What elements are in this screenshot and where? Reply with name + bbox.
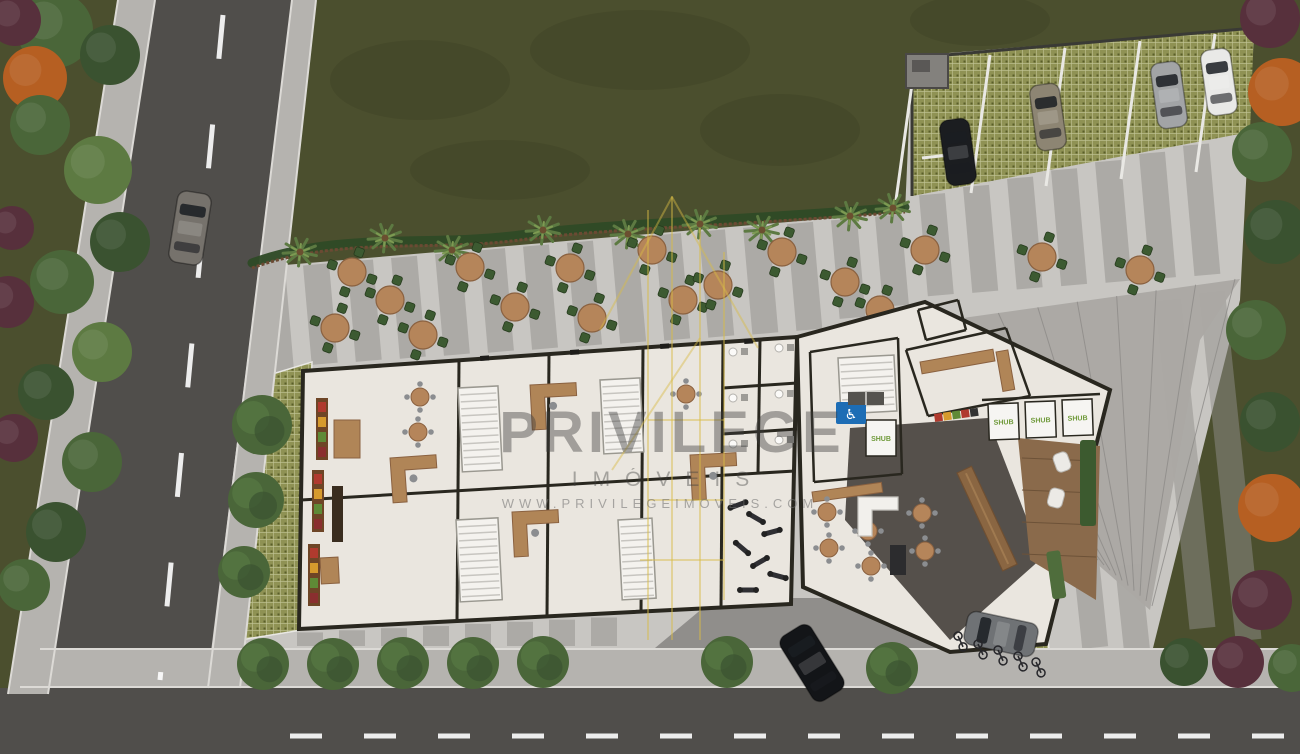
- restroom-sink: [741, 348, 748, 355]
- shub-mat: SHUB: [988, 403, 1019, 440]
- terrace-table: [911, 236, 939, 264]
- shub-label: SHUB: [871, 436, 891, 443]
- storefront-door: [660, 343, 669, 349]
- shub-mat: SHUB: [866, 420, 896, 456]
- roof-highlight: [947, 145, 969, 161]
- tree_dark-foliage-hi: [32, 510, 62, 540]
- indoor-table: [862, 557, 880, 575]
- market-goods: [310, 548, 318, 558]
- watermark-subtitle-text: IMÓVEIS: [572, 468, 765, 491]
- palmc-foliage-hi: [78, 330, 108, 360]
- storefront-door: [570, 349, 579, 355]
- terrace-table: [556, 254, 584, 282]
- market-goods: [310, 563, 318, 573]
- tree-shade: [327, 656, 353, 682]
- market-goods: [318, 402, 326, 412]
- indoor-chair: [402, 429, 408, 435]
- palm-trunk: [890, 205, 897, 212]
- terrace-table: [338, 258, 366, 286]
- tree-foliage-hi: [1238, 130, 1268, 160]
- watermark-url-text: WWW.PRIVILEGEIMOVEIS.COM: [502, 496, 818, 511]
- terrace-table: [456, 253, 484, 281]
- market-goods: [310, 578, 318, 588]
- produce-crate: [970, 408, 979, 417]
- site-plan-render: SHUBSHUBSHUBSHUB♿ PRIVILEGE IMÓVEIS WWW.…: [0, 0, 1300, 754]
- terrace-table: [321, 314, 349, 342]
- tree-shade: [257, 656, 283, 682]
- aerial-render: SHUBSHUBSHUBSHUB♿ PRIVILEGE IMÓVEIS WWW.…: [0, 0, 1300, 754]
- indoor-chair: [826, 558, 832, 564]
- tree-foliage-hi: [68, 440, 98, 470]
- market-goods: [314, 489, 322, 499]
- indoor-chair: [868, 576, 874, 582]
- indoor-chair: [824, 496, 830, 502]
- indoor-table: [409, 423, 427, 441]
- kiosk: [890, 545, 906, 575]
- tree_dark-foliage-hi: [1246, 400, 1276, 430]
- indoor-chair: [415, 442, 421, 448]
- indoor-chair: [878, 528, 884, 534]
- indoor-chair: [868, 550, 874, 556]
- palm-trunk: [540, 227, 547, 234]
- market-goods: [310, 593, 318, 603]
- palm-trunk: [449, 247, 456, 254]
- accessible-icon: ♿: [845, 407, 858, 423]
- indoor-table: [818, 503, 836, 521]
- tree-foliage-hi: [16, 103, 46, 133]
- staircase: [456, 518, 502, 602]
- tree-shade: [397, 655, 423, 681]
- paving-stripe: [591, 618, 617, 646]
- gym-weight: [753, 587, 759, 593]
- indoor-chair: [683, 378, 689, 384]
- palm-trunk: [382, 235, 389, 242]
- terrace-table: [1028, 243, 1056, 271]
- market-goods: [318, 417, 326, 427]
- market-goods: [318, 447, 326, 457]
- roof-highlight: [1158, 88, 1180, 104]
- tree-shade: [886, 660, 912, 686]
- palm-trunk: [759, 227, 766, 234]
- roof-highlight: [1037, 110, 1059, 126]
- indoor-chair: [919, 523, 925, 529]
- palm-trunk: [297, 249, 304, 256]
- utility-structure-roof: [912, 60, 930, 72]
- indoor-chair: [428, 429, 434, 435]
- indoor-table: [411, 388, 429, 406]
- indoor-chair: [404, 394, 410, 400]
- tree-foliage-hi: [1232, 308, 1262, 338]
- shub-label: SHUB: [1031, 417, 1051, 425]
- orange-foliage-hi: [1255, 67, 1289, 101]
- green-wall: [1080, 440, 1096, 526]
- indoor-chair: [417, 381, 423, 387]
- wood-counter: [320, 557, 339, 584]
- tree-shade: [255, 416, 285, 446]
- tree-foliage-hi: [36, 258, 68, 290]
- indoor-chair: [813, 545, 819, 551]
- tree-shade: [721, 654, 747, 680]
- indoor-chair: [839, 545, 845, 551]
- indoor-chair: [909, 548, 915, 554]
- gym-equipment: [737, 587, 759, 593]
- indoor-table: [916, 542, 934, 560]
- staircase: [458, 386, 502, 472]
- restroom-fixture: [729, 348, 737, 356]
- produce-crate: [952, 410, 961, 419]
- indoor-chair: [417, 407, 423, 413]
- indoor-chair: [824, 522, 830, 528]
- orange-foliage-hi: [9, 54, 41, 86]
- indoor-chair: [919, 497, 925, 503]
- restroom-sink: [787, 390, 794, 397]
- wood-counter: [334, 420, 360, 458]
- indoor-chair: [826, 532, 832, 538]
- indoor-chair: [932, 510, 938, 516]
- produce-crate: [961, 409, 970, 418]
- palm-trunk: [697, 221, 704, 228]
- restroom-fixture: [775, 390, 783, 398]
- indoor-chair: [430, 394, 436, 400]
- tree_dark-foliage-hi: [86, 33, 116, 63]
- burgundy-foliage-hi: [1238, 578, 1268, 608]
- indoor-chair: [881, 563, 887, 569]
- roof-highlight: [1208, 75, 1230, 91]
- indoor-chair: [906, 510, 912, 516]
- shub-label: SHUB: [994, 419, 1014, 427]
- grass-patch: [410, 140, 590, 200]
- watermark-brand-text: PRIVILEGE: [499, 400, 844, 465]
- indoor-chair: [852, 528, 858, 534]
- indoor-chair: [922, 535, 928, 541]
- tree-shade: [537, 654, 563, 680]
- palmc-foliage-hi: [71, 145, 105, 179]
- produce-crate: [934, 413, 943, 422]
- indoor-table: [820, 539, 838, 557]
- indoor-chair: [837, 509, 843, 515]
- terrace-table: [376, 286, 404, 314]
- shub-mat: SHUB: [1062, 399, 1093, 436]
- burgundy-foliage-hi: [1217, 643, 1243, 669]
- shub-mat: SHUB: [1025, 401, 1056, 438]
- tree_dark-foliage-hi: [96, 220, 126, 250]
- terrace-table: [768, 238, 796, 266]
- terrace-table: [669, 286, 697, 314]
- shub-label: SHUB: [1068, 415, 1088, 423]
- gym-weight: [737, 587, 743, 593]
- market-goods: [318, 432, 326, 442]
- indoor-chair: [415, 416, 421, 422]
- storefront-door: [480, 355, 489, 361]
- indoor-table: [913, 504, 931, 522]
- produce-crate: [943, 412, 952, 421]
- tree-shade: [249, 492, 277, 520]
- palm-trunk: [625, 231, 632, 238]
- grass-patch: [330, 40, 510, 120]
- market-gondola: [332, 486, 343, 542]
- tree-foliage-hi: [3, 566, 29, 592]
- tree_dark-foliage-hi: [1165, 644, 1189, 668]
- indoor-chair: [922, 561, 928, 567]
- tree_dark-foliage-hi: [1250, 208, 1282, 240]
- indoor-chair: [935, 548, 941, 554]
- grass-patch: [530, 10, 750, 90]
- restroom-sink: [787, 344, 794, 351]
- terrace-table: [831, 268, 859, 296]
- paving-stripe: [423, 626, 449, 646]
- tree-shade: [467, 655, 493, 681]
- grass-patch: [700, 94, 860, 166]
- restroom-fixture: [775, 344, 783, 352]
- orange-foliage-hi: [1245, 483, 1279, 517]
- tree-shade: [238, 564, 264, 590]
- tree-foliage-hi: [1273, 650, 1297, 674]
- terrace-table: [501, 293, 529, 321]
- terrace-table: [1126, 256, 1154, 284]
- terrace-table: [409, 321, 437, 349]
- tree_dark-foliage-hi: [24, 371, 52, 399]
- market-goods: [314, 504, 322, 514]
- indoor-chair: [855, 563, 861, 569]
- market-goods: [314, 474, 322, 484]
- indoor-chair: [865, 541, 871, 547]
- palm-trunk: [847, 213, 854, 220]
- market-goods: [314, 519, 322, 529]
